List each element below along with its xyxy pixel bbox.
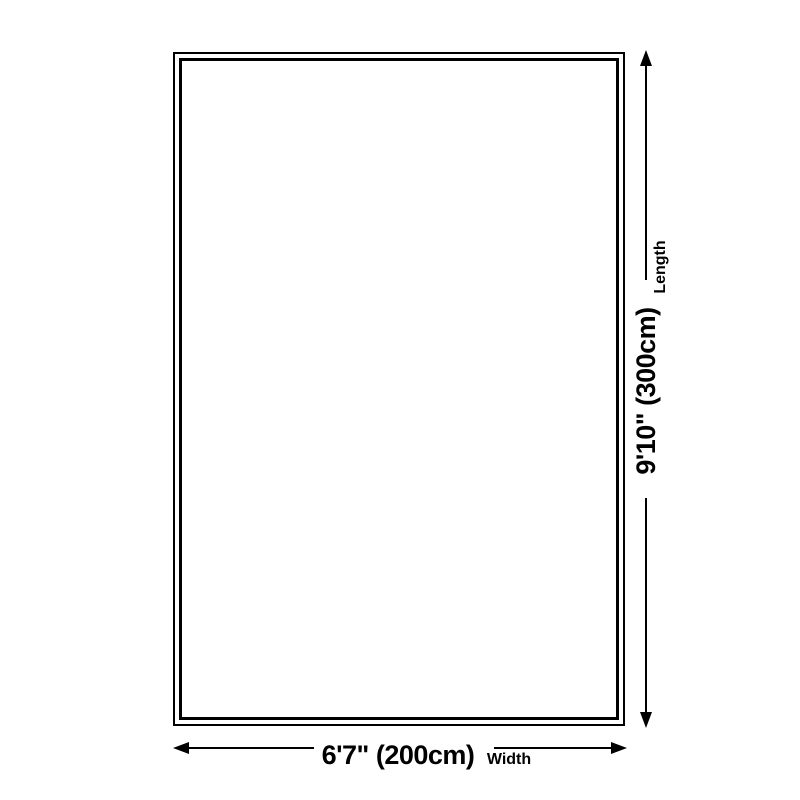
length-value: 9'10" (300cm) <box>631 306 661 476</box>
width-dimension-line-right <box>494 747 612 749</box>
length-dimension-line-top <box>645 64 647 280</box>
length-label: Length <box>652 237 670 297</box>
rug-outline <box>173 52 625 726</box>
width-label: Width <box>484 751 534 769</box>
arrow-down-icon <box>640 712 652 728</box>
width-value: 6'7" (200cm) <box>318 740 478 771</box>
rug-inner-border <box>179 58 619 720</box>
width-dimension-line-left <box>188 747 314 749</box>
arrow-left-icon <box>173 742 189 754</box>
arrow-right-icon <box>611 742 627 754</box>
length-dimension-line-bottom <box>645 498 647 714</box>
rug-size-diagram: 6'7" (200cm) Width Length 9'10" (300cm) <box>0 0 800 800</box>
